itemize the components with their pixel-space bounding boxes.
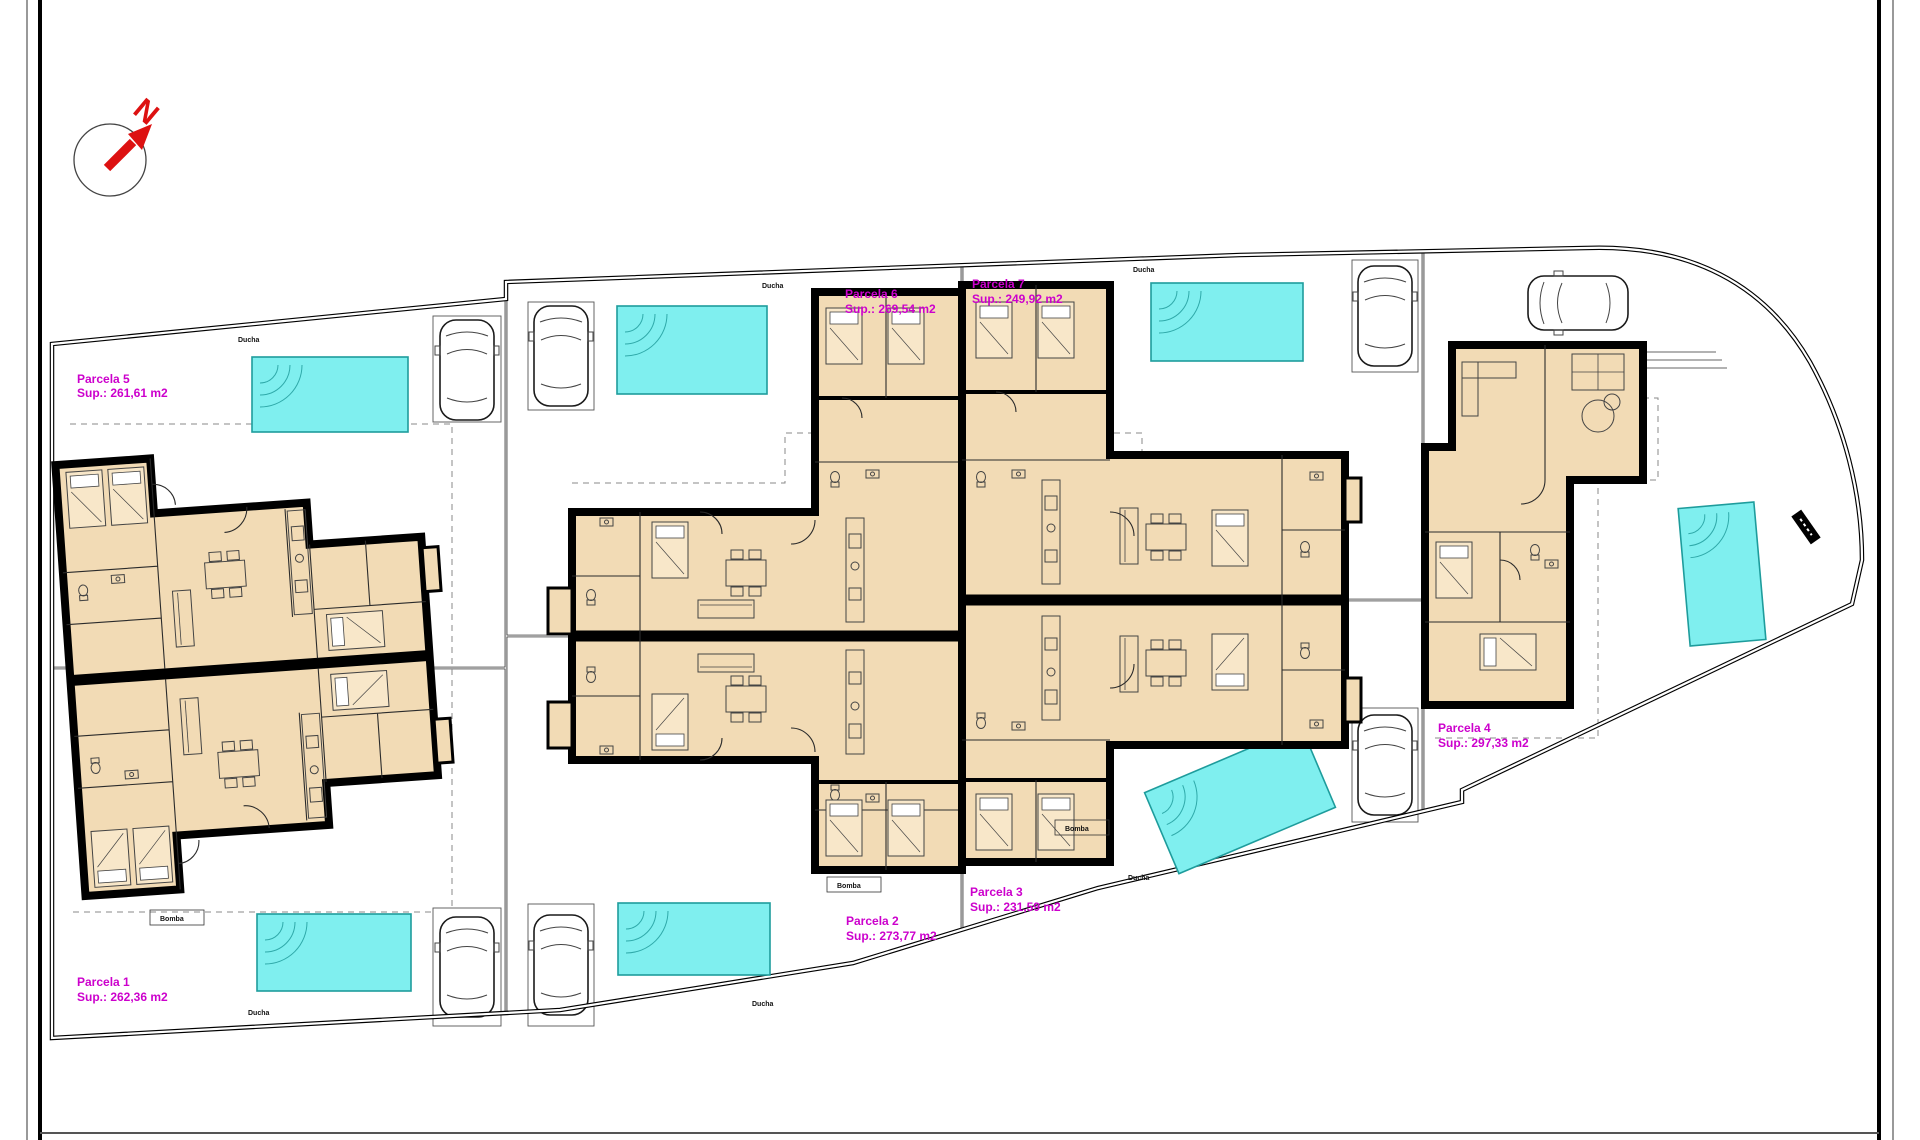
parcel-4-area: Sup.: 297,33 m2 xyxy=(1438,736,1529,750)
parcel-1-area: Sup.: 262,36 m2 xyxy=(77,990,168,1004)
car-parcel-2 xyxy=(529,915,593,1015)
parcel-2-area: Sup.: 273,77 m2 xyxy=(846,929,937,943)
gate-marker xyxy=(1791,510,1820,545)
parcel-5-name: Parcela 5 xyxy=(77,372,130,386)
car-parcel-7 xyxy=(1353,266,1417,366)
car-parcel-5 xyxy=(435,320,499,420)
site-plan-canvas: N Parcela 5 Sup.: 261,61 m2 Parcela 1 Su… xyxy=(0,0,1920,1140)
parcel-2-name: Parcela 2 xyxy=(846,914,899,928)
car-parcel-1 xyxy=(435,917,499,1017)
car-parcel-4 xyxy=(1528,271,1628,335)
pool-parcel-7 xyxy=(1151,283,1303,361)
parcel-6-area: Sup.: 269,54 m2 xyxy=(845,302,936,316)
parcel-6-name: Parcela 6 xyxy=(845,287,898,301)
shower-label-p3: Ducha xyxy=(1128,875,1150,882)
parcel-7-area: Sup.: 249,92 m2 xyxy=(972,292,1063,306)
parcel-1-name: Parcela 1 xyxy=(77,975,130,989)
pool-parcel-1 xyxy=(257,914,411,991)
shower-label-p1: Ducha xyxy=(248,1010,270,1017)
car-parcel-3 xyxy=(1353,715,1417,815)
pump-label-p2: Bomba xyxy=(837,883,861,890)
driveway-lines xyxy=(1643,352,1727,368)
parcel-3-name: Parcela 3 xyxy=(970,885,1023,899)
shower-label-p7: Ducha xyxy=(1133,267,1155,274)
shower-label-p5: Ducha xyxy=(238,337,260,344)
parcel-5-area: Sup.: 261,61 m2 xyxy=(77,386,168,400)
pump-label-p1: Bomba xyxy=(160,916,184,923)
north-letter: N xyxy=(127,92,165,131)
parcel-3-area: Sup.: 231,59 m2 xyxy=(970,900,1061,914)
building-parcel-4 xyxy=(1425,345,1643,705)
pool-parcel-2 xyxy=(618,903,770,975)
parcel-4-name: Parcela 4 xyxy=(1438,721,1491,735)
car-parcel-6 xyxy=(529,306,593,406)
pool-parcel-5 xyxy=(252,357,408,432)
building-parcels-5-1 xyxy=(55,439,460,896)
north-compass: N xyxy=(74,92,165,196)
pool-parcel-6 xyxy=(617,306,767,394)
pool-parcel-4 xyxy=(1678,502,1766,646)
shower-label-p2: Ducha xyxy=(752,1001,774,1008)
site-plan-drawing: N Parcela 5 Sup.: 261,61 m2 Parcela 1 Su… xyxy=(0,0,1920,1140)
parcel-7-name: Parcela 7 xyxy=(972,277,1025,291)
shower-label-p6: Ducha xyxy=(762,283,784,290)
pump-label-p3: Bomba xyxy=(1065,826,1089,833)
